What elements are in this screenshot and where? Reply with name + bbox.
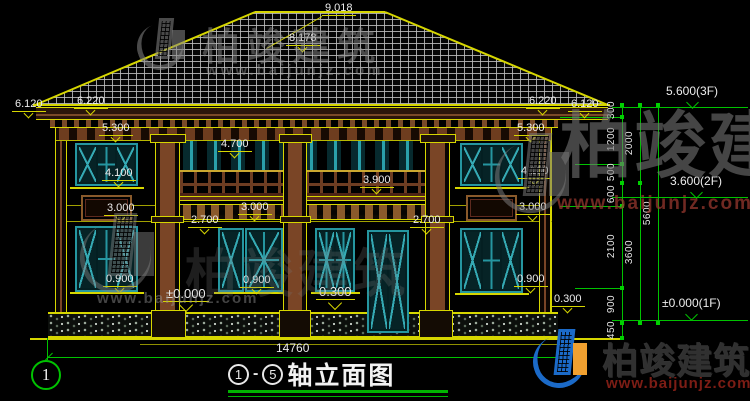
dim-tick bbox=[620, 181, 624, 185]
dim-tick bbox=[656, 103, 660, 107]
window-pane bbox=[319, 232, 334, 288]
drawing-title: 轴立面图 bbox=[287, 356, 395, 392]
dim-l-4100: 4.100 bbox=[102, 167, 136, 186]
door-leaf bbox=[371, 234, 387, 329]
window-pane bbox=[483, 147, 500, 182]
dim-c-0900: 0.900 bbox=[240, 274, 274, 293]
dim-tick bbox=[638, 321, 642, 325]
pilaster-capital bbox=[420, 134, 456, 143]
dim-r-4100: 4.100 bbox=[518, 165, 552, 184]
chain-seg-3600: 3600 bbox=[625, 229, 635, 275]
eave-fascia-band bbox=[36, 107, 608, 120]
dim-r-5300: 5.300 bbox=[514, 122, 548, 141]
roof-ridge-line bbox=[255, 11, 385, 13]
window-pane bbox=[502, 147, 519, 182]
dim-r-3000: 3.000 bbox=[516, 201, 550, 220]
dim-l-eave-top: 6.220 bbox=[74, 95, 108, 114]
ground-line bbox=[30, 338, 620, 340]
dim-chain-line-1 bbox=[622, 105, 623, 340]
dim-c-2700-right: 2.700 bbox=[410, 214, 444, 233]
axis-circle-from: 1 bbox=[228, 364, 249, 385]
level-line-2f bbox=[612, 197, 748, 198]
pilaster-mid-cap bbox=[280, 216, 311, 223]
dim-c-3900: 3.900 bbox=[360, 174, 394, 193]
title-underline-thin bbox=[228, 396, 448, 397]
wall-edge-right bbox=[551, 128, 552, 312]
pilaster-mid-cap bbox=[151, 216, 184, 223]
floor-mark-3f: 5.600(3F) bbox=[666, 85, 718, 107]
dim-l-eave-out: 6.120 bbox=[12, 98, 46, 117]
window-pane bbox=[483, 232, 500, 289]
window-sill-1f-right bbox=[455, 293, 529, 295]
pilaster-capital bbox=[150, 134, 186, 143]
chain-seg-600: 600 bbox=[607, 171, 617, 217]
dim-r-eave-out: 6.120 bbox=[568, 98, 602, 117]
dim-tick bbox=[638, 181, 642, 185]
chain-seg-2000: 2000 bbox=[625, 120, 635, 166]
dim-r-0300: 0.300 bbox=[551, 293, 585, 312]
dim-tick bbox=[620, 115, 624, 119]
dim-chain-line-2 bbox=[640, 105, 641, 323]
level-line-3f bbox=[612, 107, 748, 108]
pilaster-capital bbox=[279, 134, 312, 143]
level-line-1f bbox=[612, 320, 748, 321]
dim-l-5300: 5.300 bbox=[99, 122, 133, 141]
pilaster-center bbox=[283, 143, 307, 310]
dim-tick bbox=[620, 286, 624, 290]
total-width-label: 14760 bbox=[276, 341, 309, 355]
dim-l-3000: 3.000 bbox=[104, 202, 138, 221]
dim-r-eave-top: 6.220 bbox=[526, 95, 560, 114]
pilaster-left bbox=[155, 143, 180, 310]
cad-elevation-drawing: 9.018 8.178 6.120 6.220 5.300 4.100 3.00… bbox=[0, 0, 750, 401]
window-1f-center-right bbox=[315, 228, 355, 292]
dim-c-4700: 4.700 bbox=[218, 138, 252, 157]
eave-edge-line bbox=[33, 104, 610, 106]
hip-roof-tiles bbox=[0, 0, 750, 110]
axis-extension-line-right bbox=[558, 338, 559, 362]
ground-line-2 bbox=[140, 344, 565, 345]
dim-tick bbox=[620, 336, 624, 340]
pilaster-pedestal bbox=[419, 310, 453, 338]
window-sill-1f-left bbox=[70, 292, 144, 294]
window-sill-2f-left bbox=[70, 187, 144, 189]
dim-ridge2: 8.178 bbox=[286, 32, 320, 51]
dim-c-0300: 0.300 bbox=[316, 286, 355, 308]
watermark-bottom-right-logo: 柏竣建筑 www.baijunjz.com bbox=[535, 325, 750, 401]
window-pane bbox=[222, 232, 240, 288]
window-pane bbox=[464, 232, 481, 289]
chain-seg-2100: 2100 bbox=[607, 223, 617, 269]
spandrel-panel-right bbox=[466, 195, 517, 221]
axis-circle-to: 5 bbox=[262, 364, 283, 385]
drawing-title-block: 1 - 5 轴立面图 bbox=[228, 356, 448, 392]
entry-door bbox=[367, 230, 409, 333]
window-pane bbox=[464, 147, 481, 182]
floor-mark-1f: ±0.000(1F) bbox=[662, 297, 721, 319]
dim-r-0900: 0.900 bbox=[514, 273, 548, 292]
grid-bubble-1: 1 bbox=[31, 360, 61, 390]
chain-seg-450: 450 bbox=[607, 307, 617, 353]
corner-pilaster-left bbox=[55, 141, 67, 312]
window-2f-right-wing bbox=[460, 143, 523, 186]
dim-ridge: 9.018 bbox=[322, 2, 356, 16]
window-pane bbox=[336, 232, 351, 288]
dim-tick bbox=[620, 103, 624, 107]
pilaster-pedestal bbox=[151, 310, 186, 338]
title-underline-thick bbox=[228, 390, 448, 393]
dim-tick bbox=[620, 321, 624, 325]
watermark-cn-text: 柏竣建筑 bbox=[603, 333, 750, 385]
dim-chain-line-3 bbox=[658, 105, 659, 323]
window-sill-2f-right bbox=[455, 187, 529, 189]
dim-tick bbox=[620, 162, 624, 166]
door-leaf bbox=[389, 234, 405, 329]
dim-c-floor: ±0.000 bbox=[163, 288, 209, 310]
dim-tick bbox=[638, 103, 642, 107]
window-pane bbox=[79, 147, 96, 182]
axis-dash: - bbox=[253, 365, 258, 383]
watermark-url-text: www.baijunjz.com bbox=[606, 375, 750, 392]
pilaster-pedestal bbox=[279, 310, 311, 338]
dim-l-0900: 0.900 bbox=[103, 273, 137, 292]
window-pane bbox=[79, 230, 96, 288]
floor-mark-2f: 3.600(2F) bbox=[670, 175, 722, 197]
dim-tick bbox=[656, 321, 660, 325]
dim-c-2700-left: 2.700 bbox=[188, 214, 222, 233]
dim-c-3000: 3.000 bbox=[238, 201, 272, 220]
dim-tick bbox=[620, 204, 624, 208]
